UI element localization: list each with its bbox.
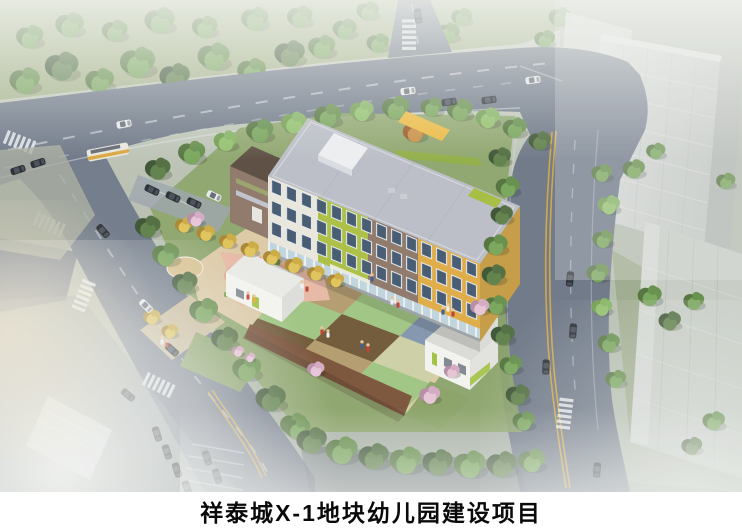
caption-bar: 祥泰城X-1地块幼儿园建设项目 xyxy=(0,492,742,529)
caption-title: 祥泰城X-1地块幼儿园建设项目 xyxy=(200,494,542,528)
rendering-canvas xyxy=(0,0,742,492)
fog xyxy=(0,0,742,492)
screenshot-root: 祥泰城X-1地块幼儿园建设项目 xyxy=(0,0,742,529)
